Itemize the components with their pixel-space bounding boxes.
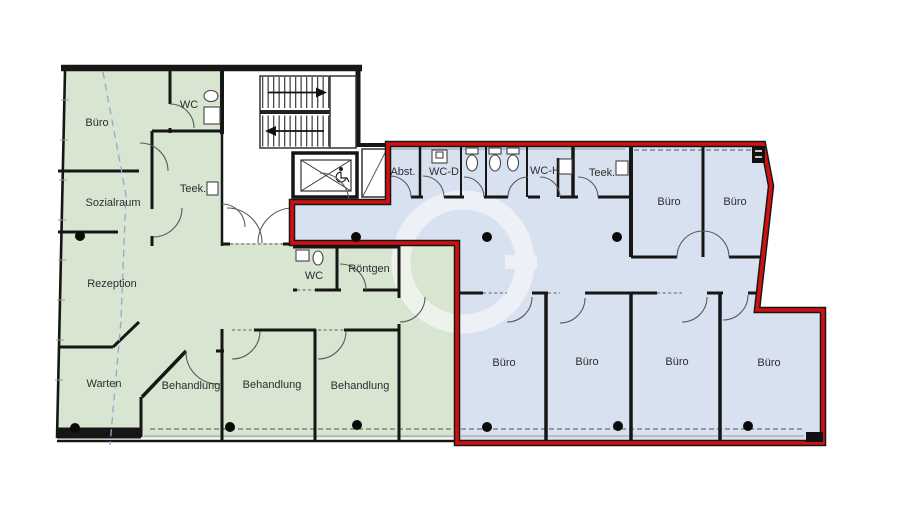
column-dot (482, 232, 492, 242)
floor-plan-drawing: Büro WC Sozialraum Teek. Rezeption Warte… (0, 0, 900, 506)
column-dot (612, 232, 622, 242)
toilet-icon (490, 155, 501, 171)
sink-icon (559, 159, 572, 174)
label-buero-topright-1: Büro (657, 196, 680, 208)
label-teekueche-left: Teek. (180, 183, 206, 195)
column-dot (743, 421, 753, 431)
floor-plan-page: Büro WC Sozialraum Teek. Rezeption Warte… (0, 0, 900, 506)
label-behandlung-3: Behandlung (331, 380, 390, 392)
column-dot (70, 423, 80, 433)
label-behandlung-2: Behandlung (243, 379, 302, 391)
toilet-icon (313, 251, 323, 265)
column-dot (352, 420, 362, 430)
label-abstellraum: Abst. (390, 166, 415, 178)
label-wc-top: WC (180, 99, 198, 111)
label-rezeption: Rezeption (87, 278, 137, 290)
label-buero-bottom-1: Büro (492, 357, 515, 369)
staircase (260, 76, 356, 148)
label-wc-d: WC-D (429, 166, 459, 178)
corner-pier (806, 432, 823, 442)
sink-icon (616, 161, 628, 175)
label-buero-bottom-3: Büro (665, 356, 688, 368)
toilet-tank (466, 148, 478, 154)
label-buero-topleft: Büro (85, 117, 108, 129)
label-buero-bottom-4: Büro (757, 357, 780, 369)
toilet-icon (467, 155, 478, 171)
toilet-tank (507, 148, 519, 154)
shaft (362, 149, 388, 197)
sink-basin (436, 152, 443, 158)
column-dot (75, 231, 85, 241)
elevator (293, 153, 357, 197)
sink-icon (207, 182, 218, 195)
column-dot (482, 422, 492, 432)
label-wc-mid: WC (305, 270, 323, 282)
label-wc-h: WC-H (530, 165, 560, 177)
toilet-icon (204, 107, 220, 124)
label-teekueche-right: Teek. (589, 167, 615, 179)
column-dot (351, 232, 361, 242)
label-roentgen: Röntgen (348, 263, 390, 275)
label-buero-topright-2: Büro (723, 196, 746, 208)
toilet-icon (508, 155, 519, 171)
column-dot (613, 421, 623, 431)
sink-icon (204, 91, 218, 102)
duct-block (752, 146, 765, 163)
label-sozialraum: Sozialraum (85, 197, 140, 209)
label-buero-bottom-2: Büro (575, 356, 598, 368)
label-behandlung-1: Behandlung (162, 380, 221, 392)
toilet-tank (489, 148, 501, 154)
column-dot (225, 422, 235, 432)
sink-icon (296, 250, 309, 261)
label-warten: Warten (86, 378, 121, 390)
